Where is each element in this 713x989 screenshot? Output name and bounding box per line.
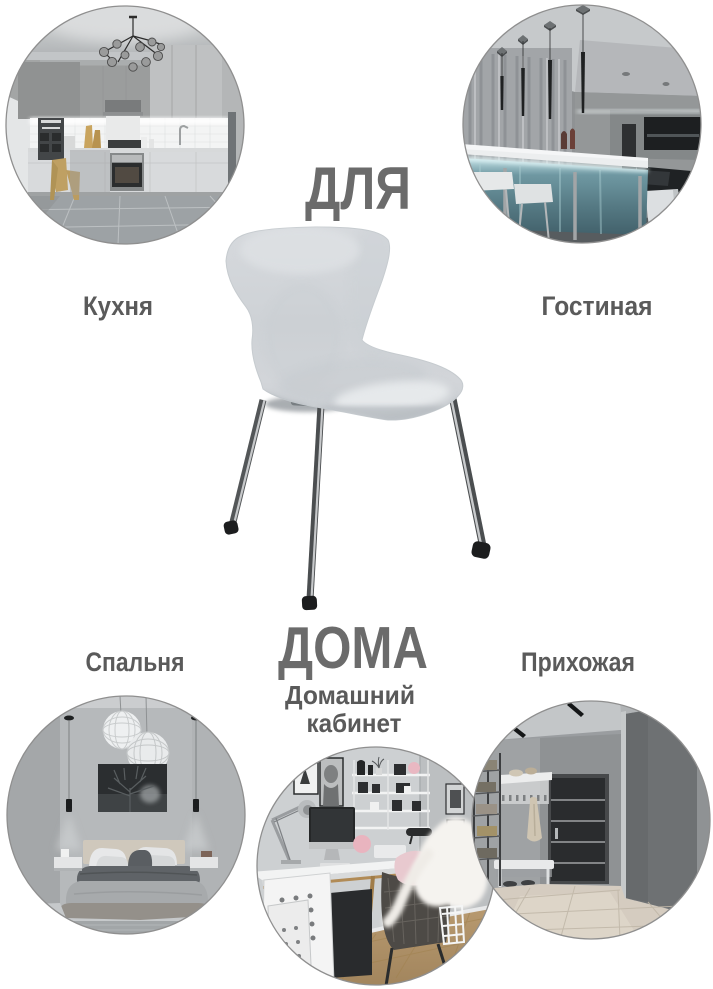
svg-text:Гостиная: Гостиная xyxy=(542,291,653,321)
svg-text:Домашний: Домашний xyxy=(285,680,415,710)
svg-text:Прихожая: Прихожая xyxy=(521,647,635,677)
svg-text:Спальня: Спальня xyxy=(86,647,185,677)
svg-text:кабинет: кабинет xyxy=(307,708,402,738)
svg-text:Кухня: Кухня xyxy=(83,291,153,321)
svg-text:ДЛЯ: ДЛЯ xyxy=(305,155,411,222)
svg-text:ДОМА: ДОМА xyxy=(278,615,428,681)
